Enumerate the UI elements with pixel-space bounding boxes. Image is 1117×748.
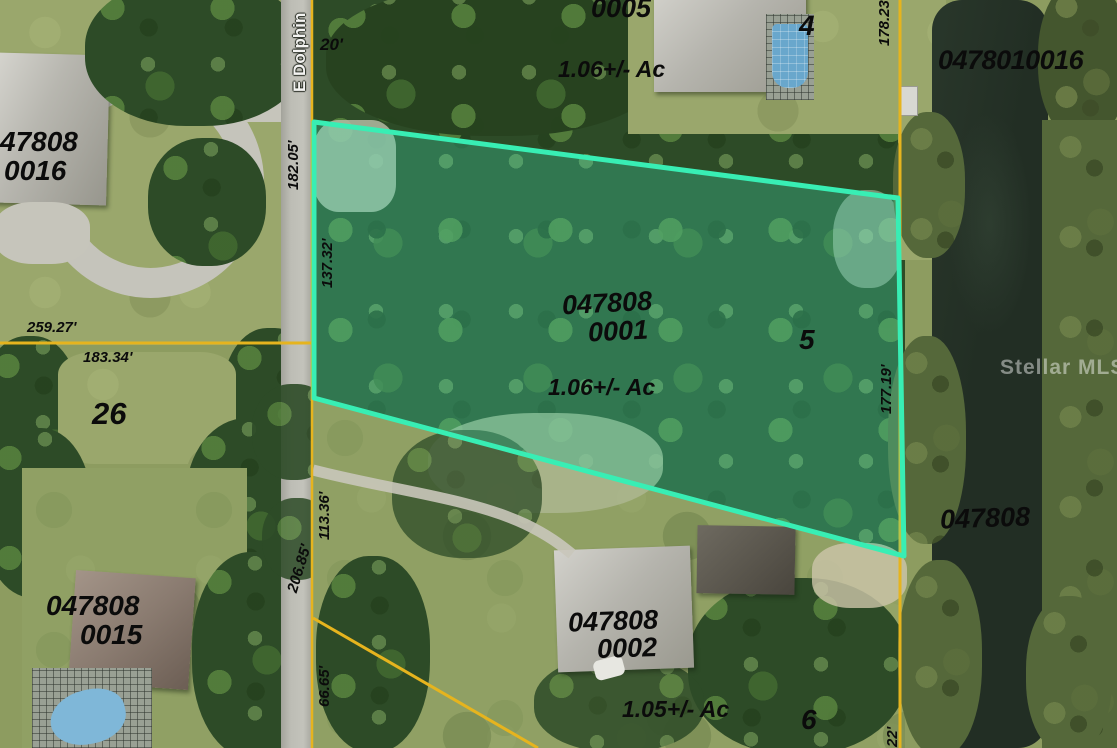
driveway-south	[313, 470, 572, 554]
lot-number-6: 6	[801, 706, 817, 734]
lot-number-4: 4	[799, 12, 815, 40]
dim-subject-west: 137.32'	[320, 239, 335, 288]
area-label-0001: 1.06+/- Ac	[548, 376, 655, 399]
dim-south-road-upper: 113.36'	[317, 492, 332, 540]
dim-road-width: 20'	[320, 36, 343, 53]
parcel-label-0016-line2: 0016	[4, 157, 66, 185]
area-label-0002: 1.05+/- Ac	[622, 698, 729, 721]
parcel-label-0015-line2: 0015	[80, 621, 142, 649]
dim-west-north: 182.05'	[286, 141, 301, 190]
area-label-0005: 1.06+/- Ac	[558, 58, 665, 81]
dim-left-upper: 259.27'	[27, 320, 76, 335]
parcel-label-canal: 0478010016	[938, 47, 1083, 74]
boundary-line-diagonal	[313, 618, 538, 748]
parcel-label-0001-line2: 0001	[587, 316, 648, 346]
dim-left-lower: 183.34'	[83, 350, 132, 365]
parcel-label-0015-line1: 047808	[46, 592, 139, 620]
aerial-parcel-map: E Dolphin 20' 0005 4 1.06+/- Ac 04780100…	[0, 0, 1117, 748]
lot-number-5: 5	[799, 326, 815, 354]
dim-se-corner: 22'	[885, 727, 900, 747]
parcel-label-0005: 0005	[591, 0, 651, 22]
parcel-label-water-south: 047808	[940, 503, 1031, 533]
parcel-label-0016-line1: 47808	[0, 128, 78, 156]
dim-south-road-lower: 66.65'	[317, 666, 332, 707]
street-name-label: E Dolphin	[291, 13, 308, 92]
watermark: Stellar MLS	[1000, 356, 1117, 380]
dim-north-east: 178.23'	[877, 0, 892, 46]
lot-number-26: 26	[92, 398, 126, 429]
parcel-label-0002-line2: 0002	[597, 634, 658, 663]
dim-subject-east: 177.19'	[879, 365, 894, 414]
